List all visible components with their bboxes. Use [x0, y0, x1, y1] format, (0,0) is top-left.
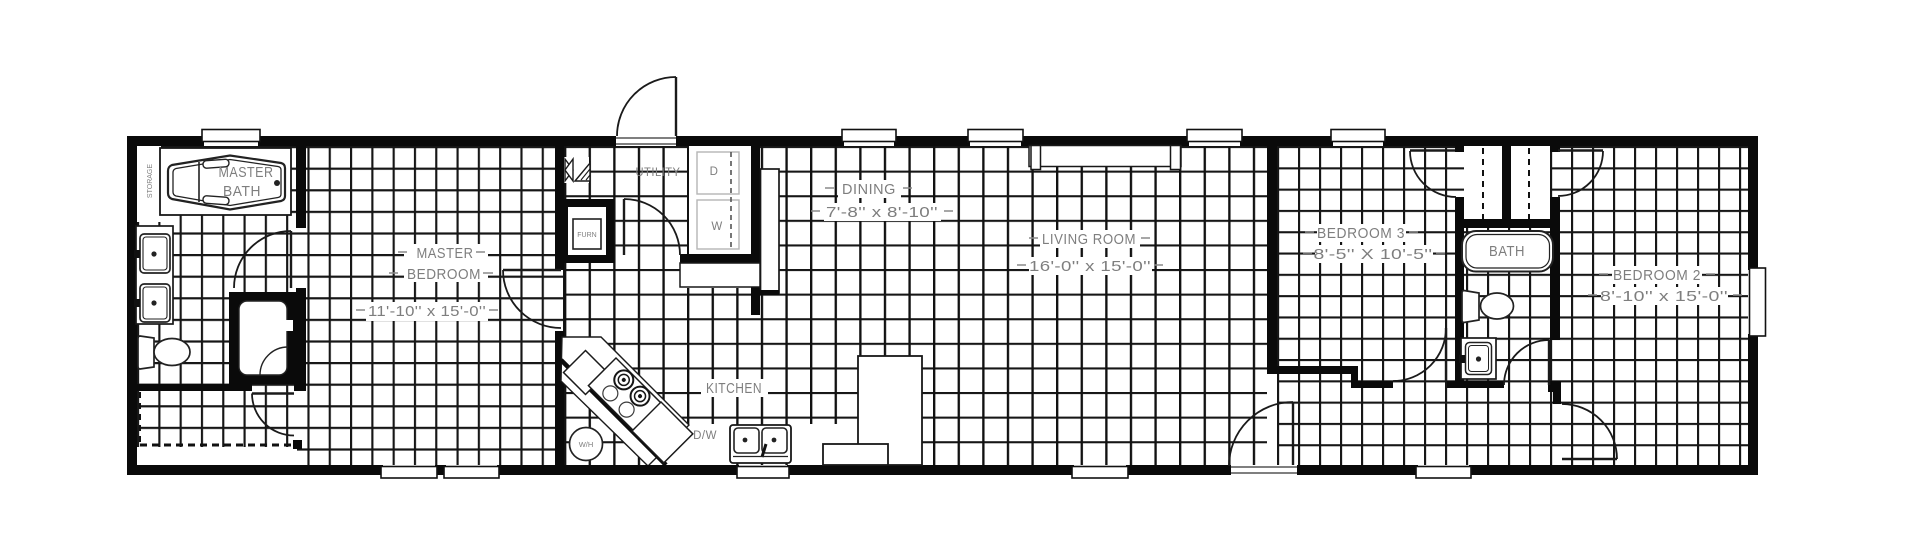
svg-text:BEDROOM: BEDROOM: [407, 266, 481, 283]
svg-text:8'-10'' x 15'-0'': 8'-10'' x 15'-0'': [1600, 288, 1728, 305]
svg-text:11'-10'' x 15'-0'': 11'-10'' x 15'-0'': [368, 303, 486, 320]
svg-text:STORAGE: STORAGE: [147, 164, 154, 198]
svg-text:KITCHEN: KITCHEN: [706, 380, 762, 397]
svg-text:LIVING ROOM: LIVING ROOM: [1042, 231, 1136, 248]
svg-text:MASTER: MASTER: [219, 164, 274, 181]
svg-text:W/H: W/H: [579, 440, 594, 449]
svg-text:DINING: DINING: [842, 181, 896, 198]
svg-text:W: W: [711, 221, 722, 233]
svg-text:MASTER: MASTER: [417, 245, 474, 262]
svg-text:8'-5'' X 10'-5'': 8'-5'' X 10'-5'': [1314, 246, 1433, 263]
svg-text:16'-0'' x 15'-0'': 16'-0'' x 15'-0'': [1029, 258, 1151, 275]
svg-text:BATH: BATH: [1489, 243, 1525, 260]
svg-text:7'-8'' x 8'-10'': 7'-8'' x 8'-10'': [826, 204, 938, 221]
svg-text:D: D: [710, 166, 719, 178]
svg-text:UTILITY: UTILITY: [636, 167, 681, 179]
svg-text:D/W: D/W: [693, 430, 717, 442]
svg-text:BEDROOM 3: BEDROOM 3: [1317, 225, 1405, 242]
svg-text:BATH: BATH: [223, 183, 261, 200]
svg-text:FURN: FURN: [577, 232, 596, 239]
svg-text:BEDROOM 2: BEDROOM 2: [1613, 267, 1701, 284]
